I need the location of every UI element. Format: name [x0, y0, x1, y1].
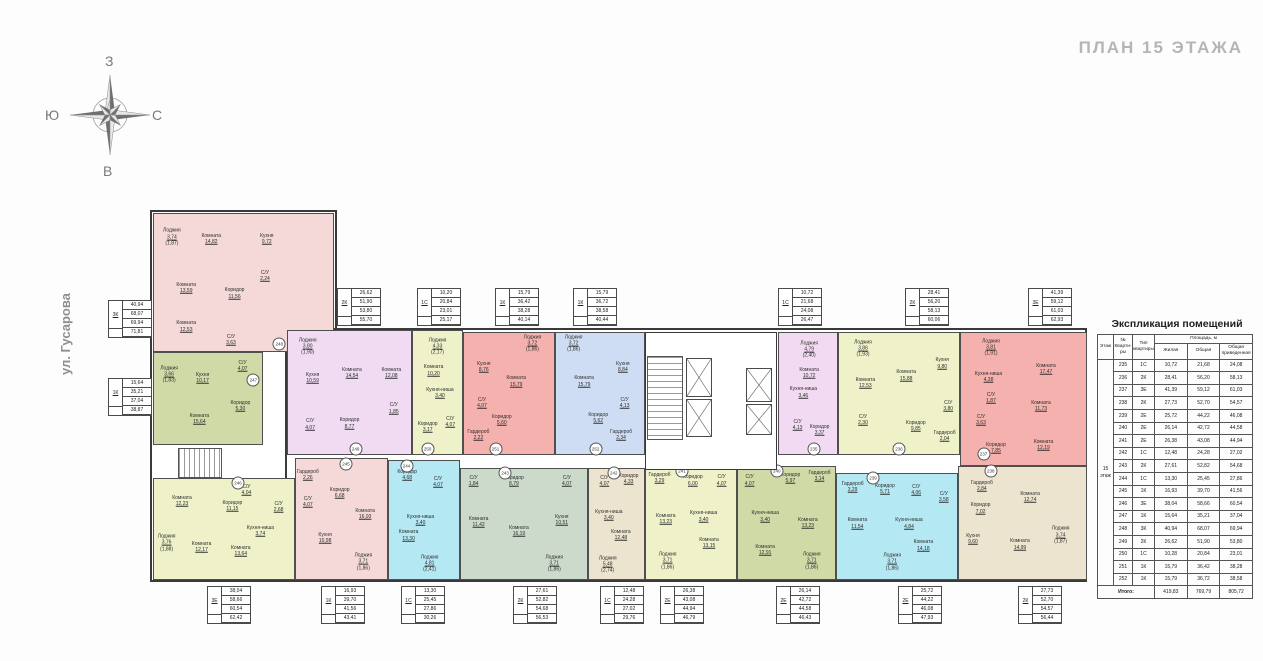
room-name: Комната	[176, 320, 196, 326]
room-label: Комната14,99	[1010, 538, 1030, 551]
room-label: Лоджия3,86(1,93)	[854, 339, 872, 358]
room-area: 10,72	[803, 373, 816, 379]
room-label: Коридор6,68	[330, 486, 350, 499]
room-label: Лоджия3,71(1,86)	[883, 553, 901, 572]
apt-type-cell: 1К	[1133, 573, 1155, 586]
spec-type: 1К	[322, 587, 336, 614]
apartment-237: Лоджия3,81(1,91)Кухня-ниша4,38Комната17,…	[960, 332, 1087, 466]
room-area-reduced: (2,17)	[429, 350, 447, 356]
room-name: Гардероб	[808, 470, 830, 476]
area-cell: 24,28	[1187, 447, 1220, 460]
apartment-number-badge: 245	[340, 457, 353, 470]
apt-no-cell: 238	[1114, 397, 1133, 410]
room-name: Лоджия	[158, 534, 176, 540]
apartment-number-badge: 236	[893, 443, 906, 456]
spec-area-value: 44,22	[913, 596, 941, 605]
room-area: 12,53	[180, 326, 193, 332]
room-area-reduced: (1,93)	[854, 352, 872, 358]
room-label: Коридор5,60	[492, 414, 512, 427]
room-area: 14,54	[346, 373, 359, 379]
explication-table: Этаж № Кварти­ры Тип квартиры Площадь, м…	[1097, 334, 1253, 599]
spec-area-value: 27,61	[528, 587, 556, 596]
room-label: Коридор5,71	[875, 482, 895, 495]
room-label: Комната12,19	[1034, 439, 1054, 452]
room-area-reduced: (1,90)	[299, 350, 317, 356]
spec-area-value: 55,70	[352, 316, 380, 325]
room-area: 17,47	[1040, 369, 1053, 375]
spec-area-value: 68,07	[123, 310, 151, 319]
spec-area-value: 36,42	[510, 298, 538, 307]
room-area: 3,72	[569, 341, 579, 347]
room-name: С/У	[274, 501, 282, 507]
room-name: Лоджия	[163, 228, 181, 234]
spec-area-value: 41,39	[1043, 289, 1071, 298]
room-name: Лоджия	[599, 555, 617, 561]
spec-area-value: 35,21	[123, 388, 151, 397]
spec-box-2К: 2К26,6251,9053,8055,70	[337, 288, 381, 326]
spec-area-value: 40,44	[588, 316, 616, 325]
spec-area-value: 44,58	[791, 605, 819, 614]
table-row: 2451К16,9339,7041,56	[1098, 485, 1253, 498]
elevator-shaft	[686, 399, 712, 437]
area-cell: 28,41	[1155, 372, 1188, 385]
spec-area-value: 27,86	[416, 605, 444, 614]
room-name: Комната	[1036, 362, 1056, 368]
room-name: Кухня	[196, 371, 209, 377]
room-area: 15,88	[900, 375, 913, 381]
spec-area-value: 40,14	[510, 316, 538, 325]
table-row: 2463Е38,0458,6660,54	[1098, 498, 1253, 511]
room-name: Кухня-ниша	[975, 370, 1002, 376]
room-area: 7,02	[976, 508, 986, 514]
spec-area-value: 23,01	[432, 307, 460, 316]
table-row: 2373Е41,3959,1261,03	[1098, 384, 1253, 397]
apt-type-cell: 2Е	[1133, 410, 1155, 423]
room-name: Кухня	[306, 371, 319, 377]
room-name: Коридор	[492, 414, 512, 420]
room-area: 10,51	[556, 520, 569, 526]
apartment-249: Лоджия3,80(1,90)Кухня10,59Комната14,54Ко…	[287, 330, 412, 455]
room-name: Лоджия	[800, 341, 818, 347]
col-total: Общая	[1187, 344, 1220, 359]
area-cell: 35,21	[1187, 510, 1220, 523]
room-area-reduced: (2,40)	[800, 353, 818, 359]
room-name: Кухня	[555, 513, 568, 519]
room-area: 4,33	[624, 479, 634, 485]
room-name: С/У	[261, 269, 269, 275]
area-cell: 38,58	[1220, 573, 1253, 586]
room-name: С/У	[390, 402, 398, 408]
area-cell: 52,70	[1187, 397, 1220, 410]
room-name: Комната	[699, 537, 719, 543]
area-cell: 54,68	[1220, 460, 1253, 473]
room-label: Лоджия3,74(1,87)	[163, 228, 181, 247]
room-label: Комната17,47	[1036, 362, 1056, 375]
room-area-reduced: (1,87)	[163, 240, 181, 246]
apartment-240: С/У4,07Коридор5,97Гардероб3,14Кухня-ниша…	[737, 466, 836, 580]
table-row: 2402Е26,1442,7244,58	[1098, 422, 1253, 435]
spec-type: 1С	[779, 289, 793, 316]
room-name: Коридор	[986, 442, 1006, 448]
spec-area-value: 26,14	[791, 587, 819, 596]
room-label: Кухня10,98	[318, 532, 331, 545]
spec-box-1С: 1С10,7221,6824,0826,47	[778, 288, 822, 326]
apt-type-cell: 1К	[1133, 561, 1155, 574]
compass-star-icon	[65, 70, 155, 160]
room-label: Комната11,73	[1031, 399, 1051, 412]
room-name: Комната	[176, 282, 196, 288]
room-area: 3,46	[798, 392, 808, 398]
room-area: 1,84	[469, 481, 479, 487]
spec-area-value: 40,94	[123, 301, 151, 310]
room-area: 3,80	[303, 344, 313, 350]
room-area: 5,30	[236, 406, 246, 412]
room-area: 4,07	[433, 482, 443, 488]
apt-no-cell: 242	[1114, 447, 1133, 460]
room-name: С/У	[940, 491, 948, 497]
spec-area-value: 60,54	[222, 605, 250, 614]
spec-area-value: 25,45	[416, 596, 444, 605]
room-name: Комната	[611, 529, 631, 535]
room-name: Коридор	[810, 424, 830, 430]
spec-area-value: 10,20	[432, 289, 460, 298]
room-label: С/У3,80	[943, 399, 953, 412]
spec-area-value: 43,08	[675, 596, 703, 605]
room-name: Лоджия	[982, 338, 1000, 344]
room-area: 3,40	[435, 393, 445, 399]
room-name: Кухня	[477, 361, 490, 367]
area-cell: 27,73	[1155, 397, 1188, 410]
staircase-core	[647, 356, 683, 440]
area-cell: 58,66	[1187, 498, 1220, 511]
room-label: С/У3,63	[226, 334, 236, 347]
spec-box-1К: 1К15,7936,4238,2840,14	[495, 288, 539, 326]
room-label: Гардероб2,22	[467, 428, 489, 441]
spec-box-2Е: 2Е25,7244,2246,0847,93	[898, 586, 942, 624]
spec-area-value: 36,72	[588, 298, 616, 307]
spec-empty-cell	[402, 614, 416, 623]
spec-empty-cell	[899, 614, 913, 623]
area-cell: 51,90	[1187, 536, 1220, 549]
room-label: Кухня-ниша3,40	[595, 509, 622, 522]
spec-area-value: 62,93	[1043, 316, 1071, 325]
room-area: 8,84	[618, 367, 628, 373]
room-name: Коридор	[418, 421, 438, 427]
area-cell: 46,08	[1220, 410, 1253, 423]
room-area: 3,71	[807, 558, 817, 564]
explication-title: Экспликация помещений	[1097, 318, 1257, 330]
apt-type-cell: 3К	[1133, 523, 1155, 536]
spec-area-value: 26,38	[675, 587, 703, 596]
room-area: 3,71	[358, 559, 368, 565]
room-label: Комната12,74	[1020, 491, 1040, 504]
apartment-number-badge: 246	[232, 477, 245, 490]
room-label: Гардероб3,14	[808, 470, 830, 483]
apt-no-cell: 237	[1114, 384, 1133, 397]
room-label: Лоджия4,33(2,17)	[429, 338, 447, 357]
room-name: Комната	[231, 545, 251, 551]
room-name: Коридор	[225, 287, 245, 293]
elevator-shaft	[746, 368, 772, 402]
spec-box-3Е: 3Е41,3959,1261,0362,93	[1028, 288, 1072, 326]
apt-no-cell: 243	[1114, 460, 1133, 473]
room-name: Кухня-ниша	[407, 514, 434, 520]
spec-type: 3Е	[208, 587, 222, 614]
room-label: Кухня-ниша3,74	[247, 525, 274, 538]
room-label: Комната14,82	[201, 232, 221, 245]
spec-area-value: 39,70	[336, 596, 364, 605]
spec-area-value: 12,48	[615, 587, 643, 596]
room-name: Кухня	[616, 361, 629, 367]
col-total-reduced: Общая приве­денная	[1220, 344, 1253, 359]
area-cell: 10,28	[1155, 548, 1188, 561]
apartment-250: Лоджия4,33(2,17)Комната10,20Кухня-ниша3,…	[412, 330, 463, 455]
area-cell: 15,79	[1155, 573, 1188, 586]
room-area: 4,07	[305, 424, 315, 430]
room-area: 13,15	[703, 543, 716, 549]
room-name: Комната	[1034, 439, 1054, 445]
spec-empty-cell	[338, 316, 352, 325]
apartment-number-badge: 243	[499, 467, 512, 480]
apartment-241: Гардероб3,29Коридор6,00С/У4,07Комната13,…	[645, 466, 737, 580]
apt-no-cell: 235	[1114, 359, 1133, 372]
room-area-reduced: (1,86)	[524, 347, 542, 353]
room-label: Коридор11,15	[223, 500, 243, 513]
table-row: 2492К26,6251,9053,80	[1098, 536, 1253, 549]
room-name: Комната	[574, 375, 594, 381]
apartment-number-badge: 237	[977, 448, 990, 461]
spec-empty-cell	[1019, 614, 1033, 623]
area-cell: 26,62	[1155, 536, 1188, 549]
spec-area-value: 54,57	[1033, 605, 1061, 614]
room-label: С/У4,07	[717, 474, 727, 487]
apartment-252: Лоджия3,72(1,86)Комната15,79Кухня8,84С/У…	[555, 332, 645, 455]
table-row: 2362К28,4156,2058,13	[1098, 372, 1253, 385]
apt-type-cell: 1С	[1133, 359, 1155, 372]
room-label: С/У2,24	[260, 269, 270, 282]
area-cell: 25,45	[1187, 473, 1220, 486]
room-name: С/У	[793, 419, 801, 425]
room-name: Комната	[509, 524, 529, 530]
room-label: Комната15,64	[190, 412, 210, 425]
apartment-243: С/У1,84Коридор8,79С/У4,07Комната11,42Ком…	[460, 468, 588, 580]
room-area: 11,54	[851, 523, 863, 529]
room-name: Коридор	[330, 486, 350, 492]
elevator-shaft	[686, 358, 712, 397]
room-label: Коридор7,02	[971, 502, 991, 515]
room-area: 16,93	[359, 514, 372, 520]
room-area: 12,53	[859, 383, 872, 389]
room-label: Комната12,91	[755, 544, 775, 557]
room-area: 2,30	[858, 420, 868, 426]
room-area: 3,71	[663, 558, 673, 564]
room-area-reduced: (1,87)	[1052, 538, 1070, 544]
room-name: Гардероб	[610, 428, 632, 434]
room-label: Комната13,30	[399, 529, 419, 542]
spec-area-value: 69,94	[123, 319, 151, 328]
apt-type-cell: 3Е	[1133, 498, 1155, 511]
room-label: Лоджия3,72(1,86)	[565, 335, 583, 354]
room-area: 4,79	[804, 347, 814, 353]
room-area: 6,00	[688, 480, 698, 486]
room-name: Коридор	[340, 417, 360, 423]
room-name: Кухня	[935, 357, 948, 363]
room-name: Комната	[914, 539, 934, 545]
room-name: С/У	[944, 399, 952, 405]
spec-box-1К: 1К16,9339,7041,5643,41	[321, 586, 365, 624]
apt-type-cell: 1К	[1133, 485, 1155, 498]
room-label: С/У4,06	[911, 484, 921, 497]
spec-area-value: 38,28	[510, 307, 538, 316]
room-area: 5,97	[786, 478, 796, 484]
spec-area-value: 54,68	[528, 605, 556, 614]
room-area: 3,74	[256, 531, 266, 537]
room-area: 12,91	[759, 550, 772, 556]
spec-box-2Е: 2Е26,1442,7244,5846,43	[776, 586, 820, 624]
room-area: 3,71	[549, 560, 559, 566]
room-area: 4,06	[911, 490, 921, 496]
room-label: Комната14,54	[342, 367, 362, 380]
room-name: Комната	[355, 508, 375, 514]
table-row: 2412Е26,3843,0844,94	[1098, 435, 1253, 448]
area-cell: 38,28	[1220, 561, 1253, 574]
room-name: Лоджия	[1052, 526, 1070, 532]
spec-area-value: 61,03	[1043, 307, 1071, 316]
spec-empty-cell	[109, 406, 123, 415]
room-name: Комната	[469, 516, 489, 522]
spec-box-1К: 1К15,6435,2137,0438,87	[108, 378, 152, 416]
spec-box-3К: 3К40,9468,0769,9471,81	[108, 300, 152, 338]
room-area: 3,80	[943, 406, 953, 412]
room-label: Лоджия3,71(1,86)	[659, 552, 677, 571]
room-name: Комната	[848, 517, 868, 523]
room-name: Комната	[896, 369, 916, 375]
room-label: С/У4,13	[620, 397, 630, 410]
apt-type-cell: 1С	[1133, 548, 1155, 561]
spec-empty-cell	[574, 316, 588, 325]
room-name: Коридор	[231, 400, 251, 406]
room-name: Кухня-ниша	[895, 517, 922, 523]
table-row: 15 этаж2351С10,7221,6824,08	[1098, 359, 1253, 372]
spec-type: 2Е	[899, 587, 913, 614]
room-label: С/У3,58	[939, 491, 949, 504]
area-cell: 58,13	[1220, 372, 1253, 385]
spec-type: 3К	[109, 301, 123, 328]
room-area: 10,98	[319, 538, 332, 544]
spec-empty-cell	[777, 614, 791, 623]
spec-area-value: 38,04	[222, 587, 250, 596]
spec-empty-cell	[418, 316, 432, 325]
spec-area-value: 60,06	[920, 316, 948, 325]
spec-area-value: 26,62	[352, 289, 380, 298]
col-floor: Этаж	[1098, 335, 1114, 360]
area-cell: 27,61	[1155, 460, 1188, 473]
room-area: 4,07	[303, 502, 313, 508]
totals-row: Итого:419,83769,79805,72	[1098, 586, 1253, 599]
spec-area-value: 51,90	[352, 298, 380, 307]
spec-area-value: 46,43	[791, 614, 819, 623]
spec-type: 1С	[601, 587, 615, 614]
room-label: С/У4,07	[445, 416, 455, 429]
room-name: Лоджия	[659, 552, 677, 558]
room-area: 3,40	[760, 516, 770, 522]
room-area: 4,07	[477, 403, 487, 409]
spec-area-value: 15,79	[510, 289, 538, 298]
room-name: Комната	[342, 367, 362, 373]
room-label: Гардероб2,34	[610, 428, 632, 441]
room-name: С/У	[306, 418, 314, 424]
area-cell: 54,57	[1220, 397, 1253, 410]
room-label: Гардероб2,04	[934, 430, 956, 443]
room-label: С/У3,63	[976, 414, 986, 427]
area-cell: 20,84	[1187, 548, 1220, 561]
room-name: Комната	[1031, 399, 1051, 405]
area-cell: 13,30	[1155, 473, 1188, 486]
room-label: Кухня-ниша4,38	[975, 370, 1002, 383]
room-area: 2,84	[977, 486, 987, 492]
room-area: 3,76	[162, 540, 172, 546]
room-area: 7,85	[991, 448, 1001, 454]
room-label: Комната10,20	[424, 364, 444, 377]
room-label: Кухня-ниша4,84	[895, 517, 922, 530]
room-name: Коридор	[781, 472, 801, 478]
apt-no-cell: 239	[1114, 410, 1133, 423]
area-cell: 42,72	[1187, 422, 1220, 435]
area-cell: 12,48	[1155, 447, 1188, 460]
spec-area-value: 53,80	[352, 307, 380, 316]
apt-type-cell: 2К	[1133, 397, 1155, 410]
room-label: Комната12,17	[192, 541, 212, 554]
room-name: С/У	[478, 397, 486, 403]
room-name: Коридор	[875, 482, 895, 488]
room-area: 2,26	[303, 475, 313, 481]
table-row: 2382К27,7352,7054,57	[1098, 397, 1253, 410]
room-name: Комната	[172, 495, 192, 501]
apt-type-cell: 1С	[1133, 473, 1155, 486]
spec-empty-cell	[779, 316, 793, 325]
room-label: Кухня9,72	[260, 232, 273, 245]
room-name: Гардероб	[649, 472, 671, 478]
room-label: Коридор9,85	[906, 420, 926, 433]
apt-no-cell: 246	[1114, 498, 1133, 511]
room-area-reduced: (2,74)	[599, 568, 617, 574]
room-area: 2,68	[274, 507, 284, 513]
room-label: Комната11,42	[469, 516, 489, 529]
spec-area-value: 25,72	[913, 587, 941, 596]
apartment-235: Лоджия4,79(2,40)Комната10,72Кухня-ниша3,…	[778, 332, 838, 455]
room-area: 3,37	[815, 430, 825, 436]
apartment-number-badge: 252	[589, 443, 602, 456]
totals-value: 769,79	[1187, 586, 1220, 599]
room-area: 5,60	[497, 420, 507, 426]
room-area: 9,72	[262, 239, 272, 245]
room-label: Комната11,54	[848, 517, 868, 530]
apt-no-cell: 251	[1114, 561, 1133, 574]
apt-no-cell: 247	[1114, 510, 1133, 523]
table-row: 2432К27,6152,8254,68	[1098, 460, 1253, 473]
apartment-number-badge: 239	[867, 472, 880, 485]
room-area: 16,19	[513, 531, 526, 537]
room-area-reduced: (1,86)	[803, 564, 821, 570]
room-area: 1,87	[986, 398, 996, 404]
room-name: Комната	[656, 512, 676, 518]
apartment-number-badge: 242	[607, 467, 620, 480]
room-area: 3,17	[423, 427, 433, 433]
room-label: Лоджия3,71(1,86)	[545, 554, 563, 573]
compass-north-label: С	[152, 107, 162, 123]
room-name: Комната	[798, 517, 818, 523]
compass-east-label: В	[103, 163, 112, 179]
